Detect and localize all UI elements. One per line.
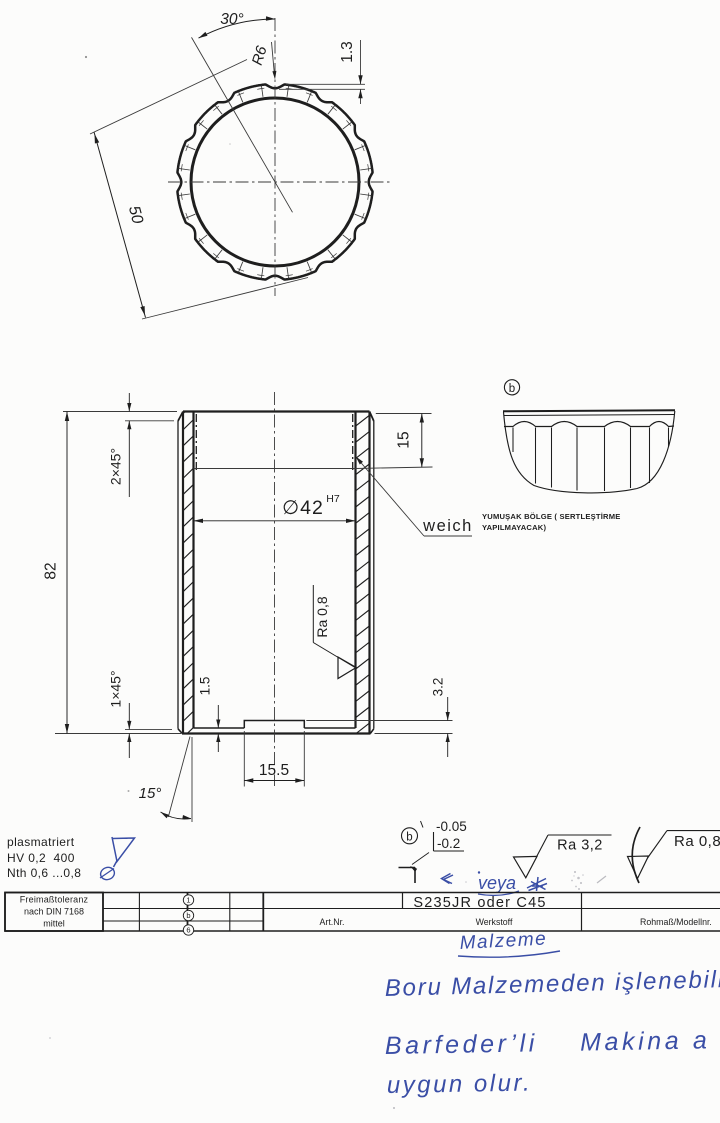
svg-text:-0.2: -0.2 [437,836,460,851]
svg-text:weich: weich [422,517,473,535]
svg-text:Nth 0,6 ...0,8: Nth 0,6 ...0,8 [7,866,81,880]
svg-text:HV 0,2 400: HV 0,2 400 [7,851,75,865]
svg-text:2×45°: 2×45° [108,448,124,485]
svg-text:1: 1 [186,896,190,905]
svg-text:S235JR oder C45: S235JR oder C45 [413,895,546,911]
svg-text:Freimaßtoleranz: Freimaßtoleranz [20,895,89,905]
svg-text:uygun olur.: uygun olur. [387,1069,533,1099]
svg-text:b: b [509,383,515,395]
svg-text:mittel: mittel [43,919,65,929]
svg-text:15°: 15° [139,785,162,802]
svg-text:Ra 0,8: Ra 0,8 [314,596,330,637]
svg-text:nach DIN 7168: nach DIN 7168 [24,907,84,917]
svg-text:b: b [186,911,190,920]
svg-text:Barfeder’li Makina a: Barfeder’li Makina a [385,1026,711,1060]
svg-text:∅42: ∅42 [282,497,324,519]
svg-text:1×45°: 1×45° [108,670,124,707]
svg-text:15: 15 [396,431,413,448]
svg-text:H7: H7 [326,493,340,505]
svg-text:Art.Nr.: Art.Nr. [320,917,345,927]
svg-text:15.5: 15.5 [259,762,289,779]
svg-text:veya: veya [478,873,516,893]
svg-text:Werkstoff: Werkstoff [476,917,513,927]
svg-text:82: 82 [43,562,60,579]
svg-text:3.2: 3.2 [431,678,446,697]
svg-text:1.5: 1.5 [198,677,213,696]
svg-text:Rohmaß/Modellnr.: Rohmaß/Modellnr. [640,917,712,927]
svg-text:plasmatriert: plasmatriert [7,835,75,849]
svg-text:YUMUŞAK BÖLGE ( SERTLEŞTİRME: YUMUŞAK BÖLGE ( SERTLEŞTİRME [482,512,621,521]
svg-text:1.3: 1.3 [339,41,356,63]
svg-text:Ra 0,8: Ra 0,8 [674,833,720,850]
svg-text:YAPILMAYACAK): YAPILMAYACAK) [482,523,546,532]
svg-text:6: 6 [186,926,190,935]
svg-text:-0.05: -0.05 [436,819,467,834]
svg-text:30°: 30° [220,11,243,28]
svg-text:Ra 3,2: Ra 3,2 [557,838,603,854]
svg-text:b: b [406,832,412,844]
